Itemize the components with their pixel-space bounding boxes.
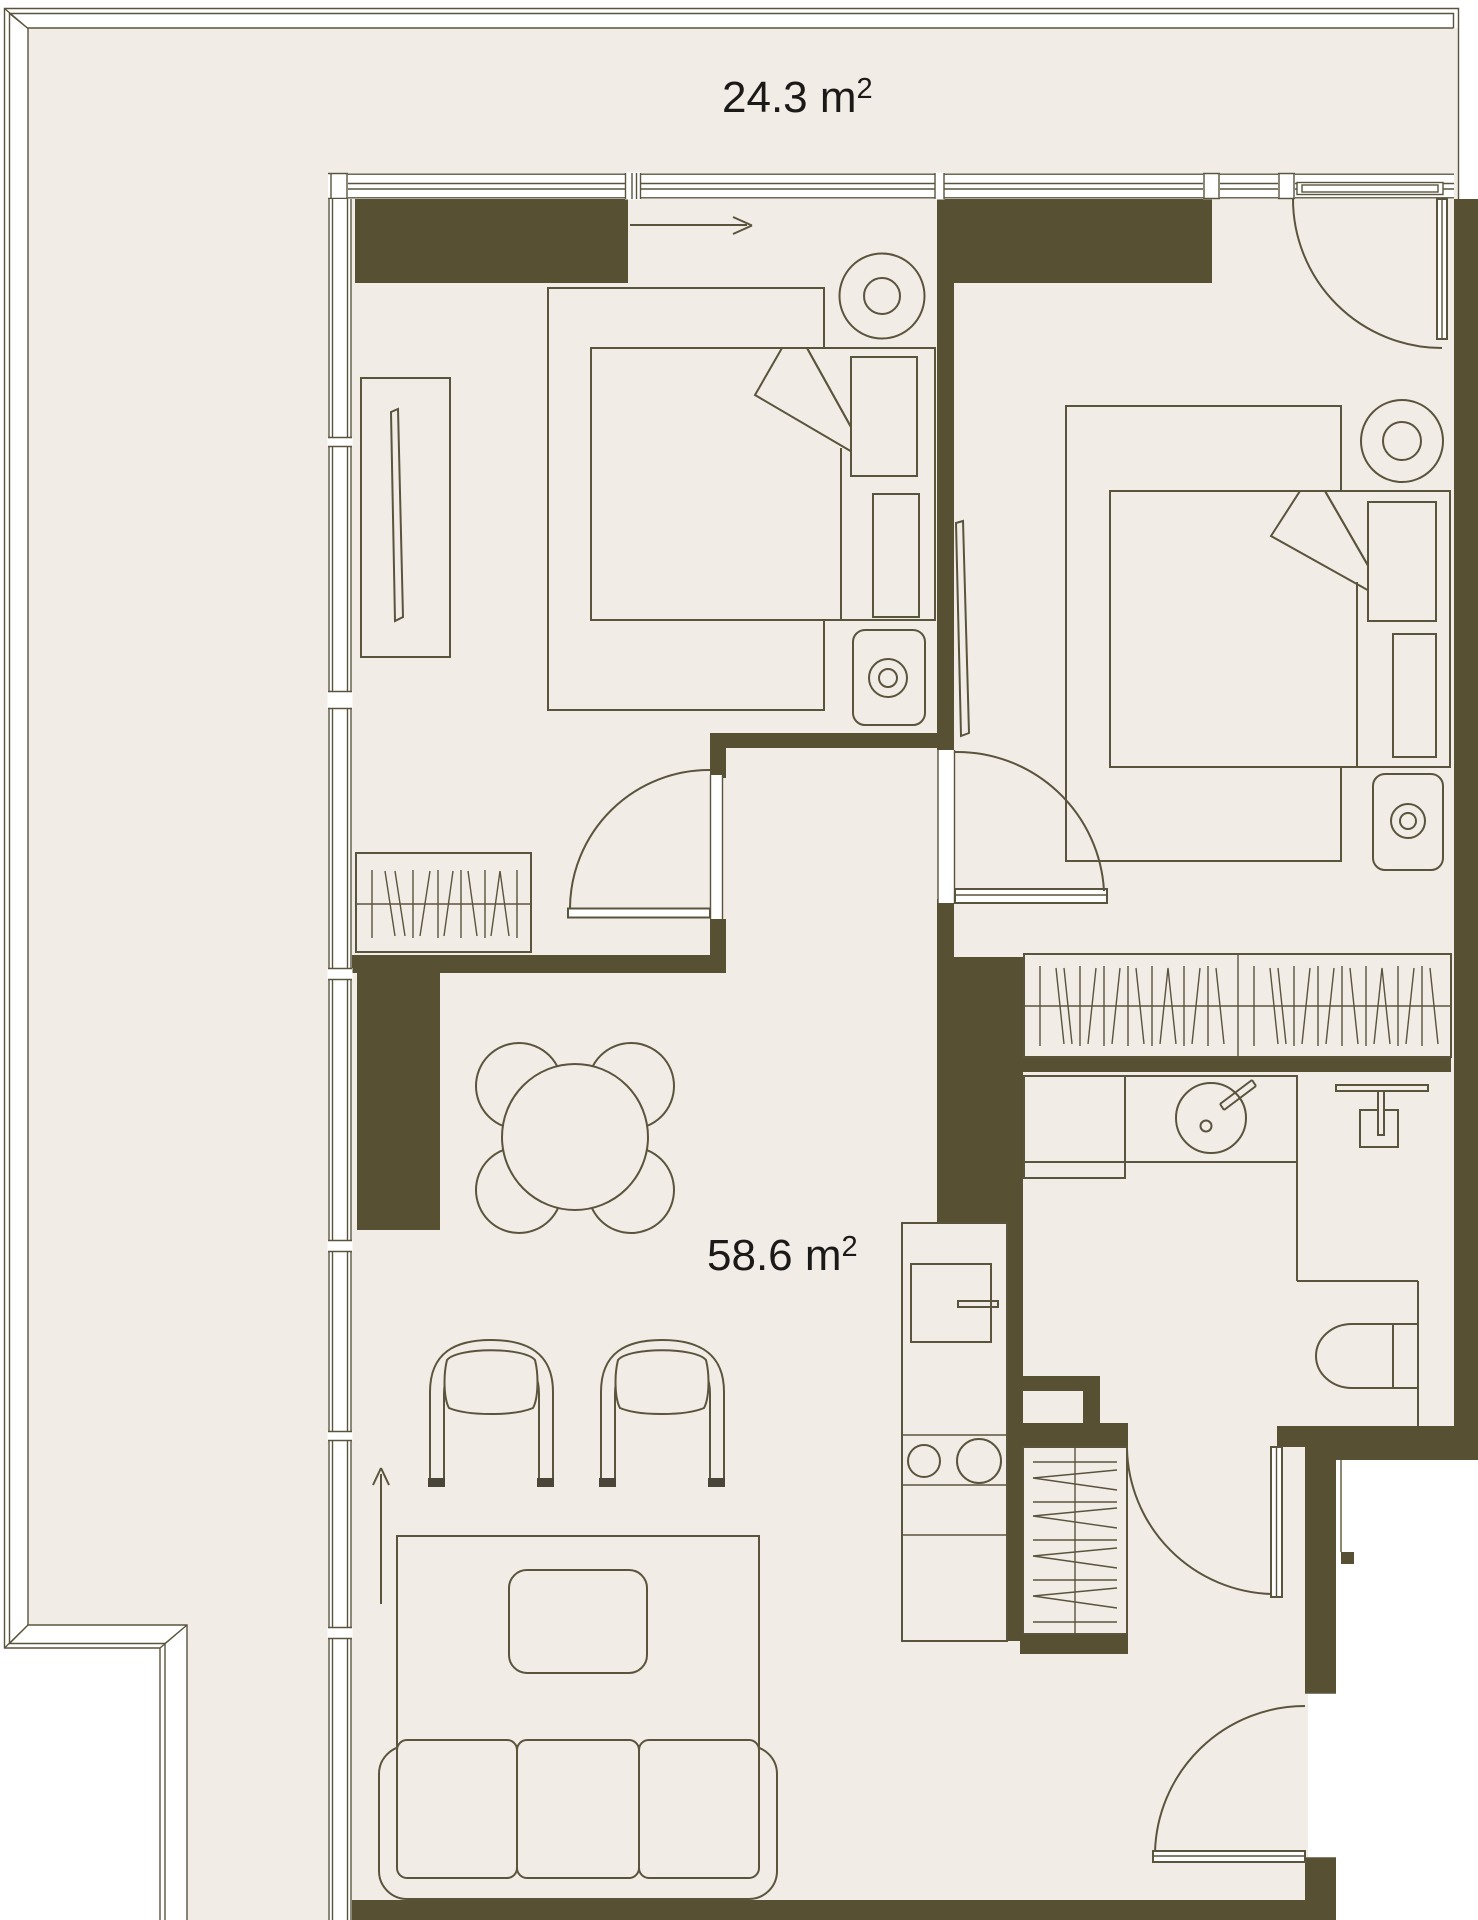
- svg-text:58.6 m2: 58.6 m2: [707, 1231, 858, 1280]
- svg-text:24.3 m2: 24.3 m2: [722, 73, 873, 122]
